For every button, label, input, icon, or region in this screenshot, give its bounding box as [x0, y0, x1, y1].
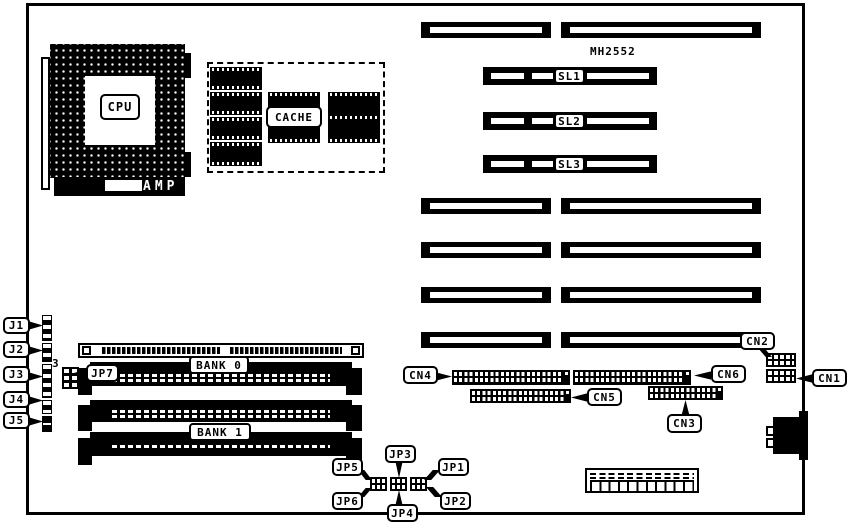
chip-pins-icon: [212, 93, 260, 96]
board-model-text: MH2552: [590, 45, 636, 58]
bank1-label: BANK 1: [189, 423, 251, 441]
j2-label: J2: [3, 341, 30, 358]
cn4-label: CN4: [403, 366, 438, 384]
j2-label-text: J2: [9, 343, 24, 356]
cn3-label: CN3: [667, 414, 702, 433]
j2-edge-connector: [42, 343, 52, 362]
dash-row: [112, 415, 330, 418]
chip-pins-icon: [212, 143, 260, 146]
power-pads: [590, 477, 694, 479]
simm-contacts: [102, 347, 220, 354]
cache-chip: [210, 142, 262, 166]
pin1-marker: [685, 371, 690, 376]
cn2-label: CN2: [740, 332, 775, 350]
jp5-label: JP5: [332, 458, 363, 476]
motherboard-diagram: CPU AMP CACHE MH2552: [0, 0, 850, 529]
keyboard-connector: [799, 411, 808, 460]
power-connector: [585, 468, 699, 493]
isa-slot-short: [421, 332, 551, 348]
pin-row: [575, 378, 684, 382]
cn5-label-text: CN5: [593, 391, 616, 404]
pin1-marker: [564, 371, 569, 376]
keyboard-connector-pin: [766, 438, 775, 448]
keyboard-connector-pin: [766, 426, 775, 436]
isa-slot-long: [561, 332, 761, 348]
slot-stripe: [570, 203, 752, 209]
jumper-pins: [392, 479, 395, 483]
cache-chip: [328, 92, 380, 143]
cn1-label: CN1: [812, 369, 847, 387]
isa-slot-short: [421, 198, 551, 214]
jp4-label: JP4: [387, 504, 418, 522]
jp7-jumper-block: [62, 367, 79, 389]
jumper-pins: [412, 479, 415, 483]
cpu-tab-top: [184, 53, 191, 78]
jp7-label-text: JP7: [91, 367, 114, 380]
pin1-marker: [717, 387, 722, 392]
cn4-label-text: CN4: [409, 369, 432, 382]
cpu-label-text: CPU: [108, 100, 133, 114]
jp1-jp2-jumper-block: [410, 477, 427, 491]
simm-latch: [82, 346, 91, 355]
jp7-label: JP7: [86, 364, 119, 382]
isa-slot-short: [421, 22, 551, 38]
slot-stripe: [430, 203, 542, 209]
dash-row: [112, 374, 330, 377]
cn6-connector: [573, 370, 691, 385]
chip-pins-icon: [212, 68, 260, 71]
cn3-label-text: CN3: [673, 417, 696, 430]
cpu-retention-bracket: [41, 57, 50, 190]
cn1-label-text: CN1: [818, 372, 841, 385]
chip-pins-icon: [330, 93, 378, 96]
cn2-connector: [766, 353, 796, 367]
jp1-label: JP1: [438, 458, 469, 476]
jp5-label-text: JP5: [336, 461, 359, 474]
slot-stripe: [570, 247, 752, 253]
j4-label-text: J4: [9, 393, 24, 406]
dash-row: [112, 379, 330, 382]
sl2-label: SL2: [554, 113, 585, 129]
cn2-label-text: CN2: [746, 335, 769, 348]
chip-pins-icon: [212, 118, 260, 121]
jp2-label-text: JP2: [444, 495, 467, 508]
bank1-label-text: BANK 1: [197, 426, 243, 439]
jp4-label-text: JP4: [391, 507, 414, 520]
simm-contacts: [230, 347, 342, 354]
slot-stripe: [430, 247, 542, 253]
cache-chip: [210, 92, 262, 115]
cpu-brand-text: AMP: [143, 179, 178, 194]
cn6-label: CN6: [711, 365, 746, 383]
pin-row: [650, 394, 716, 398]
j1-label-text: J1: [9, 319, 24, 332]
sl1-label: SL1: [554, 68, 585, 84]
power-pads: [590, 473, 694, 475]
pin-row: [472, 397, 564, 401]
chip-pins-icon: [212, 162, 260, 165]
cache-label-text: CACHE: [275, 111, 313, 124]
cache-chip: [210, 67, 262, 90]
cn6-label-text: CN6: [717, 368, 740, 381]
pin-row: [454, 372, 563, 376]
pin-row: [472, 391, 564, 395]
cn5-label: CN5: [587, 388, 622, 406]
jp3-jp4-jumper-block: [390, 477, 407, 491]
chip-pins-icon: [330, 139, 378, 142]
j3-label: J3: [3, 366, 30, 383]
sl3-label-text: SL3: [558, 158, 581, 171]
slot-stripe: [570, 292, 752, 298]
cn5-connector: [470, 389, 571, 403]
chip-pins-icon: [330, 116, 378, 119]
jp7-pin4-text: 4: [78, 377, 85, 390]
jp6-label-text: JP6: [336, 495, 359, 508]
j5-label: J5: [3, 412, 30, 429]
sl2-label-text: SL2: [558, 115, 581, 128]
jumper-pins: [372, 479, 375, 483]
slot-stripe: [430, 337, 542, 343]
simm-contacts: [112, 410, 330, 420]
j3-label-text: J3: [9, 368, 24, 381]
cpu-label: CPU: [100, 94, 140, 120]
cache-label: CACHE: [266, 106, 322, 128]
chip-pins-icon: [212, 111, 260, 114]
bank0-label-text: BANK 0: [196, 359, 242, 372]
isa-slot-long: [561, 242, 761, 258]
slot-stripe: [587, 161, 649, 167]
sl1-label-text: SL1: [558, 70, 581, 83]
simm-contacts: [112, 445, 330, 450]
cache-chip: [210, 117, 262, 140]
isa-slot-long: [561, 198, 761, 214]
jp1-label-text: JP1: [442, 461, 465, 474]
isa-slot-long: [561, 287, 761, 303]
slot-stripe: [491, 73, 524, 79]
pin-row: [575, 372, 684, 376]
slot-stripe: [532, 73, 553, 79]
pin1-marker: [565, 390, 570, 395]
cpu-amp-window: [105, 180, 142, 191]
dash-row: [112, 410, 330, 413]
slot-stripe: [587, 118, 649, 124]
jp6-label: JP6: [332, 492, 363, 510]
jp5-jp6-jumper-block: [370, 477, 387, 491]
isa-slot-long: [561, 22, 761, 38]
cn1-connector: [766, 369, 796, 383]
jumper-pins: [64, 369, 69, 373]
pin-row: [768, 377, 794, 381]
slot-stripe: [491, 161, 524, 167]
dash-row: [112, 445, 330, 448]
simm-socket: [90, 400, 352, 422]
chip-pins-icon: [212, 136, 260, 139]
chip-pins-icon: [270, 93, 318, 96]
slot-stripe: [430, 292, 542, 298]
slot-stripe: [570, 337, 752, 343]
pin-row: [650, 388, 716, 392]
j4-label: J4: [3, 391, 30, 408]
slot-stripe: [532, 161, 553, 167]
jp7-pin3-text: 3: [52, 357, 59, 370]
slot-stripe: [430, 27, 542, 33]
isa-slot-short: [421, 242, 551, 258]
pin-row: [768, 355, 794, 359]
slot-stripe: [570, 27, 752, 33]
chip-pins-icon: [270, 139, 318, 142]
pin-row: [454, 378, 563, 382]
isa-slot-short: [421, 287, 551, 303]
power-pin-row: [590, 480, 694, 491]
j5-edge-connector: [42, 416, 52, 432]
pin-row: [768, 361, 794, 365]
slot-stripe: [587, 73, 649, 79]
slot-stripe: [491, 118, 524, 124]
simm-contacts: [112, 374, 330, 384]
cn4-connector: [452, 370, 570, 385]
j5-label-text: J5: [9, 414, 24, 427]
j1-label: J1: [3, 317, 30, 334]
slot-stripe: [532, 118, 553, 124]
simm-latch: [351, 346, 360, 355]
chip-pins-icon: [212, 86, 260, 89]
bank0-label: BANK 0: [189, 356, 249, 374]
j3-edge-connector: [42, 364, 52, 398]
pin-row: [768, 371, 794, 375]
cpu-tab-bottom: [184, 152, 191, 177]
cn3-connector: [648, 386, 723, 400]
sl3-label: SL3: [554, 156, 585, 172]
jp3-label: JP3: [385, 445, 416, 463]
j4-edge-connector: [42, 400, 52, 414]
jp2-label: JP2: [440, 492, 471, 510]
jp3-label-text: JP3: [389, 448, 412, 461]
j1-edge-connector: [42, 315, 52, 341]
